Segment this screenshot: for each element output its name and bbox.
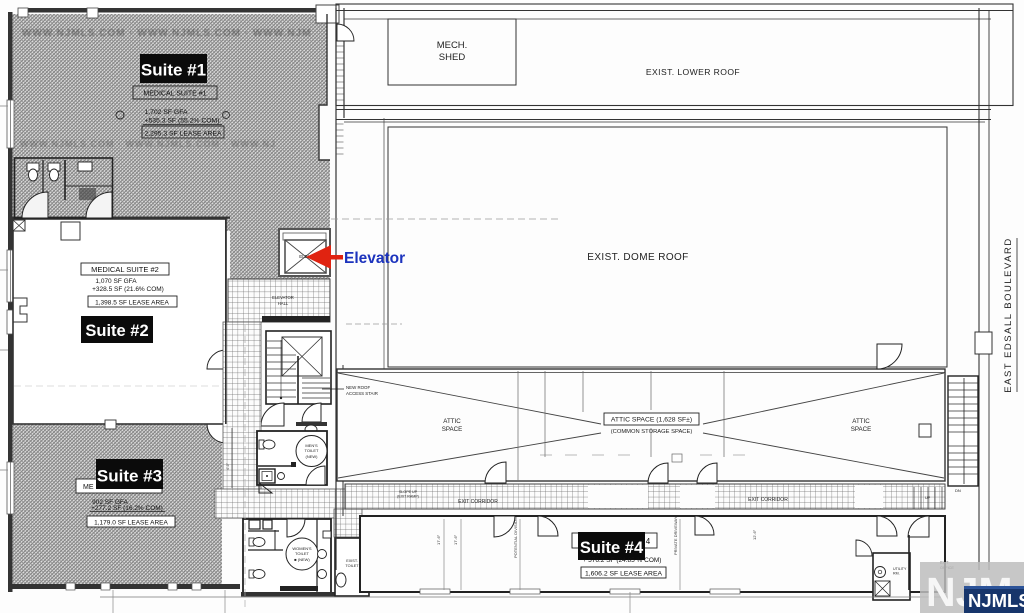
svg-text:SLOPE UP: SLOPE UP — [399, 490, 418, 494]
svg-text:+328.5 SF (21.6% COM): +328.5 SF (21.6% COM) — [92, 286, 164, 293]
svg-text:TOILET: TOILET — [305, 448, 319, 453]
svg-text:1,070 SF GFA: 1,070 SF GFA — [95, 278, 137, 285]
svg-text:Suite #4: Suite #4 — [580, 539, 644, 557]
svg-text:SPACE: SPACE — [851, 426, 872, 433]
svg-text:DN: DN — [955, 488, 961, 493]
svg-text:SHED: SHED — [439, 52, 466, 63]
svg-text:ATTIC: ATTIC — [443, 418, 461, 425]
svg-text:MEDICAL SUITE #2: MEDICAL SUITE #2 — [91, 265, 159, 274]
svg-text:POTENTIAL DIVISION: POTENTIAL DIVISION — [513, 517, 518, 558]
svg-text:ME: ME — [83, 484, 94, 491]
svg-text:+277.2 SF (16.2% COM): +277.2 SF (16.2% COM) — [91, 505, 163, 512]
svg-text:EXIT CORRIDOR: EXIT CORRIDOR — [458, 499, 498, 505]
svg-text:4'-0": 4'-0" — [226, 462, 230, 470]
svg-text:4: 4 — [646, 537, 651, 546]
svg-text:NJMLS: NJMLS — [968, 590, 1024, 611]
svg-text:(NEW): (NEW) — [306, 454, 319, 459]
svg-text:1,702 SF GFA: 1,702 SF GFA — [144, 109, 188, 116]
svg-text:TOILET: TOILET — [295, 551, 309, 556]
svg-text:EXIST. DOME ROOF: EXIST. DOME ROOF — [587, 252, 688, 263]
svg-text:UTILITY: UTILITY — [893, 567, 907, 571]
svg-text:MECH.: MECH. — [437, 40, 468, 51]
svg-text:17'-6": 17'-6" — [453, 534, 458, 545]
svg-text:■ (NEW): ■ (NEW) — [294, 557, 310, 562]
svg-text:TOILET: TOILET — [345, 564, 359, 568]
svg-text:2,295.3 SF LEASE AREA: 2,295.3 SF LEASE AREA — [144, 131, 222, 138]
svg-text:+ 576.2 SF (24.85 % COM): + 576.2 SF (24.85 % COM) — [583, 557, 662, 564]
svg-text:WWW.NJMLS.COM · WWW.NJMLS.COM: WWW.NJMLS.COM · WWW.NJMLS.COM · WWW.NJ — [20, 139, 276, 149]
svg-text:ATTIC SPACE (1,628 SF±): ATTIC SPACE (1,628 SF±) — [611, 417, 692, 424]
svg-text:+535.3 SF (55.2% COM): +535.3 SF (55.2% COM) — [145, 118, 220, 125]
svg-text:HALL: HALL — [278, 301, 289, 306]
svg-text:1,398.5 SF LEASE AREA: 1,398.5 SF LEASE AREA — [95, 300, 169, 307]
svg-text:1,606.2 SF LEASE AREA: 1,606.2 SF LEASE AREA — [585, 571, 663, 578]
svg-text:EXIT CORRIDOR: EXIT CORRIDOR — [748, 497, 788, 503]
svg-text:RM.: RM. — [893, 572, 900, 576]
svg-text:MEDICAL SUITE #1: MEDICAL SUITE #1 — [143, 91, 206, 98]
svg-text:SPACE: SPACE — [442, 426, 463, 433]
svg-text:17'-6": 17'-6" — [436, 534, 441, 545]
svg-text:(COMMON STORAGE SPACE): (COMMON STORAGE SPACE) — [611, 429, 693, 435]
svg-text:NEW ROOF: NEW ROOF — [346, 385, 370, 390]
svg-text:Suite #2: Suite #2 — [85, 322, 148, 340]
svg-text:EAST EDSALL BOULEVARD: EAST EDSALL BOULEVARD — [1003, 237, 1014, 392]
svg-text:ELEVATOR: ELEVATOR — [272, 295, 294, 300]
svg-text:EXIST.: EXIST. — [346, 559, 358, 563]
svg-text:ATTIC: ATTIC — [852, 418, 870, 425]
svg-text:Suite #3: Suite #3 — [97, 467, 162, 486]
svg-text:ACCESS STAIR: ACCESS STAIR — [346, 391, 378, 396]
svg-text:EXIST. LOWER ROOF: EXIST. LOWER ROOF — [646, 67, 740, 77]
svg-text:WWW.NJMLS.COM · WWW.NJMLS.COM: WWW.NJMLS.COM · WWW.NJMLS.COM · WWW.NJM — [22, 28, 312, 39]
svg-text:12'-6": 12'-6" — [752, 529, 757, 540]
svg-text:1,179.0 SF LEASE AREA: 1,179.0 SF LEASE AREA — [94, 520, 168, 527]
svg-text:Elevator: Elevator — [344, 250, 405, 267]
svg-text:PRIVATE DRIVEWAY: PRIVATE DRIVEWAY — [673, 516, 678, 555]
svg-text:(EXIT RAMP): (EXIT RAMP) — [397, 495, 419, 499]
svg-text:Suite #1: Suite #1 — [141, 61, 206, 80]
svg-text:UP: UP — [925, 496, 931, 500]
